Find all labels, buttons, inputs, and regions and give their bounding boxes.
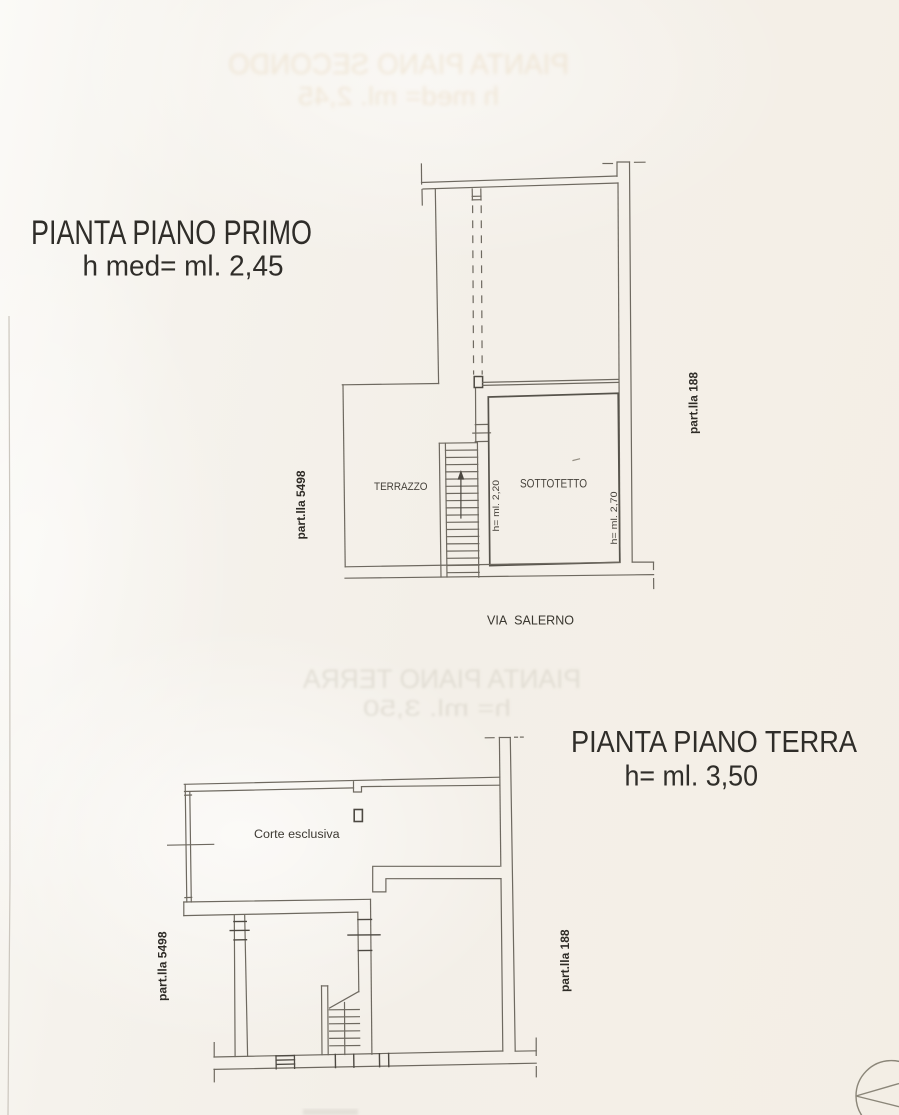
svg-text:part.lla 188: part.lla 188: [687, 372, 701, 434]
svg-text:Corte esclusiva: Corte esclusiva: [254, 829, 340, 841]
svg-text:h= ml. 2,20: h= ml. 2,20: [491, 480, 502, 532]
svg-text:VIA SALERNO: VIA SALERNO: [487, 613, 574, 628]
svg-text:h med= ml. 2,45: h med= ml. 2,45: [83, 251, 284, 283]
svg-text:PIANTA PIANO TERRA: PIANTA PIANO TERRA: [571, 725, 858, 759]
svg-text:PIANTA PIANO SECONDO: PIANTA PIANO SECONDO: [228, 49, 569, 81]
svg-text:PIANTA PIANO PRIMO: PIANTA PIANO PRIMO: [31, 214, 312, 252]
svg-text:TERRAZZO: TERRAZZO: [374, 481, 428, 493]
svg-text:h= ml. 3,50: h= ml. 3,50: [363, 695, 511, 721]
svg-text:h= ml. 3,50: h= ml. 3,50: [625, 761, 759, 793]
svg-text:h= ml. 2,70: h= ml. 2,70: [609, 492, 620, 545]
svg-text:h med= ml. 2,45: h med= ml. 2,45: [298, 81, 499, 111]
svg-text:PIANTA PIANO TERRA: PIANTA PIANO TERRA: [303, 664, 581, 694]
svg-text:part.lla 5498: part.lla 5498: [156, 931, 170, 1001]
svg-text:part.lla 188: part.lla 188: [558, 929, 572, 992]
svg-text:SOTTOTETTO: SOTTOTETTO: [520, 479, 587, 491]
svg-text:part.lla 5498: part.lla 5498: [294, 470, 308, 539]
